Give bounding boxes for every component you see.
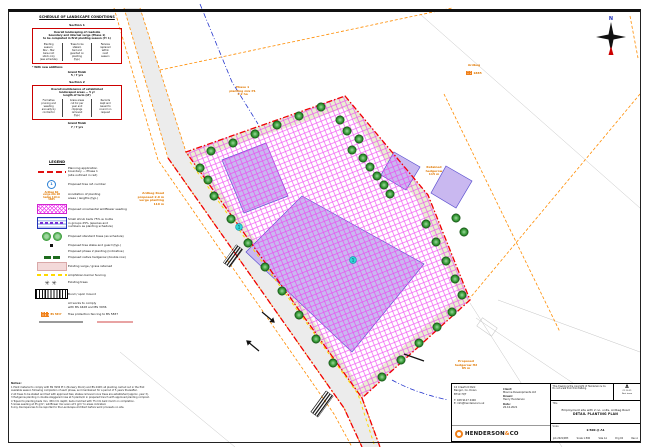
section1-label: Section 1 — [30, 23, 124, 27]
svg-text:1: 1 — [238, 225, 241, 230]
annotation-field-parcel: Ardbeg 1885 — [450, 60, 498, 79]
meta-job: Job 2021/083 — [553, 437, 568, 440]
stake-swatch — [50, 244, 53, 247]
annotation-hedge-bottom: Proposed hedgerow H2 85 m — [440, 360, 492, 371]
svg-text:N: N — [609, 16, 613, 22]
legend-item-hedgerow: Proposed native hedgerow (double row) — [35, 256, 157, 259]
scale-value: 1:500 @ A1 — [551, 428, 640, 432]
tree-ref-icon: 1 — [47, 180, 56, 189]
north-arrow-icon: N — [596, 16, 626, 55]
section2-table: Overall maintenance of established lands… — [32, 85, 122, 121]
notes-panel: Notes: 1 Plant material to comply with B… — [11, 381, 209, 410]
meta-drg: Drg 02 — [615, 437, 623, 440]
section1-col3: Failures replaced within next season — [91, 43, 119, 61]
legend-item-grass: Existing verge / grass retained — [35, 262, 157, 271]
legend-item-stake: Proposed tree stake and guard (typ.) — [35, 244, 157, 247]
conditions-heading: SCHEDULE OF LANDSCAPE CONDITIONS — [30, 15, 124, 19]
drawn-value: Henry Henderson — [503, 398, 548, 401]
section2-col2: Grass areas cut 6× per year and clipping… — [62, 99, 90, 117]
brand-name: HENDERSON — [465, 431, 505, 437]
client-value: Mourne Developments Ltd — [503, 391, 548, 394]
legend-item-tree-ref: 1 Proposed tree ref. number — [35, 180, 157, 189]
note-line: 6 Any discrepancies to be reported to th… — [11, 406, 209, 409]
legend-item-boundary: Planning application boundary — Phase 1 … — [35, 167, 157, 177]
legend-title: LEGEND — [49, 160, 157, 164]
company-logo: HENDERSON&CO — [452, 425, 550, 441]
legend: LEGEND Planning application boundary — P… — [35, 160, 157, 323]
shrub-swatch — [37, 217, 67, 229]
section1-col2: Trees to be staked, tied and guarded on … — [62, 43, 90, 61]
annotation-hedge-right: Retained hedgerow 115 m — [408, 166, 460, 177]
notes-title: Notes: — [11, 381, 209, 385]
existing-tree-icon: ✳✳ — [44, 280, 58, 287]
tree-icon — [42, 232, 51, 241]
scale-bars — [39, 321, 157, 323]
conditions-panel: SCHEDULE OF LANDSCAPE CONDITIONS Section… — [30, 15, 124, 129]
section2-col3: Records kept and issued to council on re… — [91, 99, 119, 117]
section2-col1: Formative pruning and weeding annually b… — [35, 99, 62, 117]
section1-header: Overall landscaping of roadside boundary… — [35, 31, 119, 41]
grass-swatch — [37, 262, 67, 271]
legend-item-bs4428: All works to comply with BS 4428 and BS … — [35, 302, 157, 309]
annotation-phase: Phase 1 planting mix P1 1.2 ha — [215, 86, 270, 97]
date-value: 20.10.2021 — [503, 406, 548, 409]
boundary-swatch — [38, 171, 66, 174]
scale-caption: Scale — [553, 425, 559, 428]
amphibian-swatch — [37, 274, 67, 276]
legend-item-shrub-beds: Small shrub beds 75% w. bulbs in groups … — [35, 217, 157, 229]
drawing-sheet: 1 1 N Phase 1 planting mix P1 1.2 ha Ard… — [0, 0, 650, 447]
drawing-title: DETAIL PLANTING PLAN — [551, 412, 640, 416]
section1-col1: Planting season: Nov – Mar bare-root sto… — [35, 43, 62, 61]
field-parcel-number: 1885 — [473, 71, 481, 75]
legend-item-existing-trees: ✳✳ Existing trees — [35, 280, 157, 287]
bs5837-icon — [41, 312, 49, 317]
meta-rev: Rev A — [631, 437, 638, 440]
meta-scale: Scale 1:500 — [577, 437, 591, 440]
legend-item-annotation: Ardbeg Rd verge mix 2B hedge 110 m 1885 … — [35, 192, 157, 202]
section2-total: Grand finish 7 / 7 yrs — [30, 122, 124, 129]
tree-icon — [53, 232, 62, 241]
seeding-swatch — [37, 204, 67, 214]
legend-item-amphibian: Amphibian barrier fencing — [35, 274, 157, 277]
legend-item-bund: Bund / spoil mound — [35, 289, 157, 299]
revision-cell: A 21.10.21 First issue — [613, 384, 640, 400]
legend-item-seeding: Proposed ornamental wildflower seeding — [35, 204, 157, 214]
section1-total: Grand finish 5 / 7 yrs — [30, 71, 124, 78]
section2-header: Overall maintenance of established lands… — [35, 88, 119, 98]
section1-table: Overall landscaping of roadside boundary… — [32, 28, 122, 64]
logo-ring-icon — [455, 430, 463, 438]
revision-notes: 21.10.21 First issue — [614, 390, 640, 395]
bund-swatch — [35, 289, 68, 299]
section1-footnote: * With new additions — [32, 66, 124, 69]
brand-co: CO — [510, 431, 519, 437]
title-block: 10 Crawford Park Bangor, Co. Down BT19 7… — [451, 383, 641, 442]
legend-item-bs5837: BS 5837 Tree protection fencing to BS 58… — [35, 312, 157, 317]
company-contact: T: 028 9127 4400 E: info@hendersonco.uk — [454, 399, 500, 406]
title-caption: Title — [553, 402, 558, 405]
field-parcel-name: Ardbeg — [450, 64, 498, 68]
section2-label: Section 2 — [30, 80, 124, 84]
field-parcel-icon — [466, 71, 472, 75]
legend-item-trees: Proposed standard trees (as schedule) — [35, 232, 157, 241]
legend-item-phase2: Proposed phase 2 planting (indicative) — [35, 250, 157, 253]
company-address: 10 Crawford Park Bangor, Co. Down BT19 7… — [454, 386, 500, 396]
copyright-note: This drawing is the copyright of Henders… — [551, 384, 613, 400]
svg-text:1: 1 — [352, 258, 355, 263]
annotation-sample: Ardbeg Rd verge mix 2B hedge 110 m 1885 — [43, 192, 60, 202]
hedgerow-swatch — [44, 256, 60, 259]
meta-size: Size A1 — [598, 437, 606, 440]
